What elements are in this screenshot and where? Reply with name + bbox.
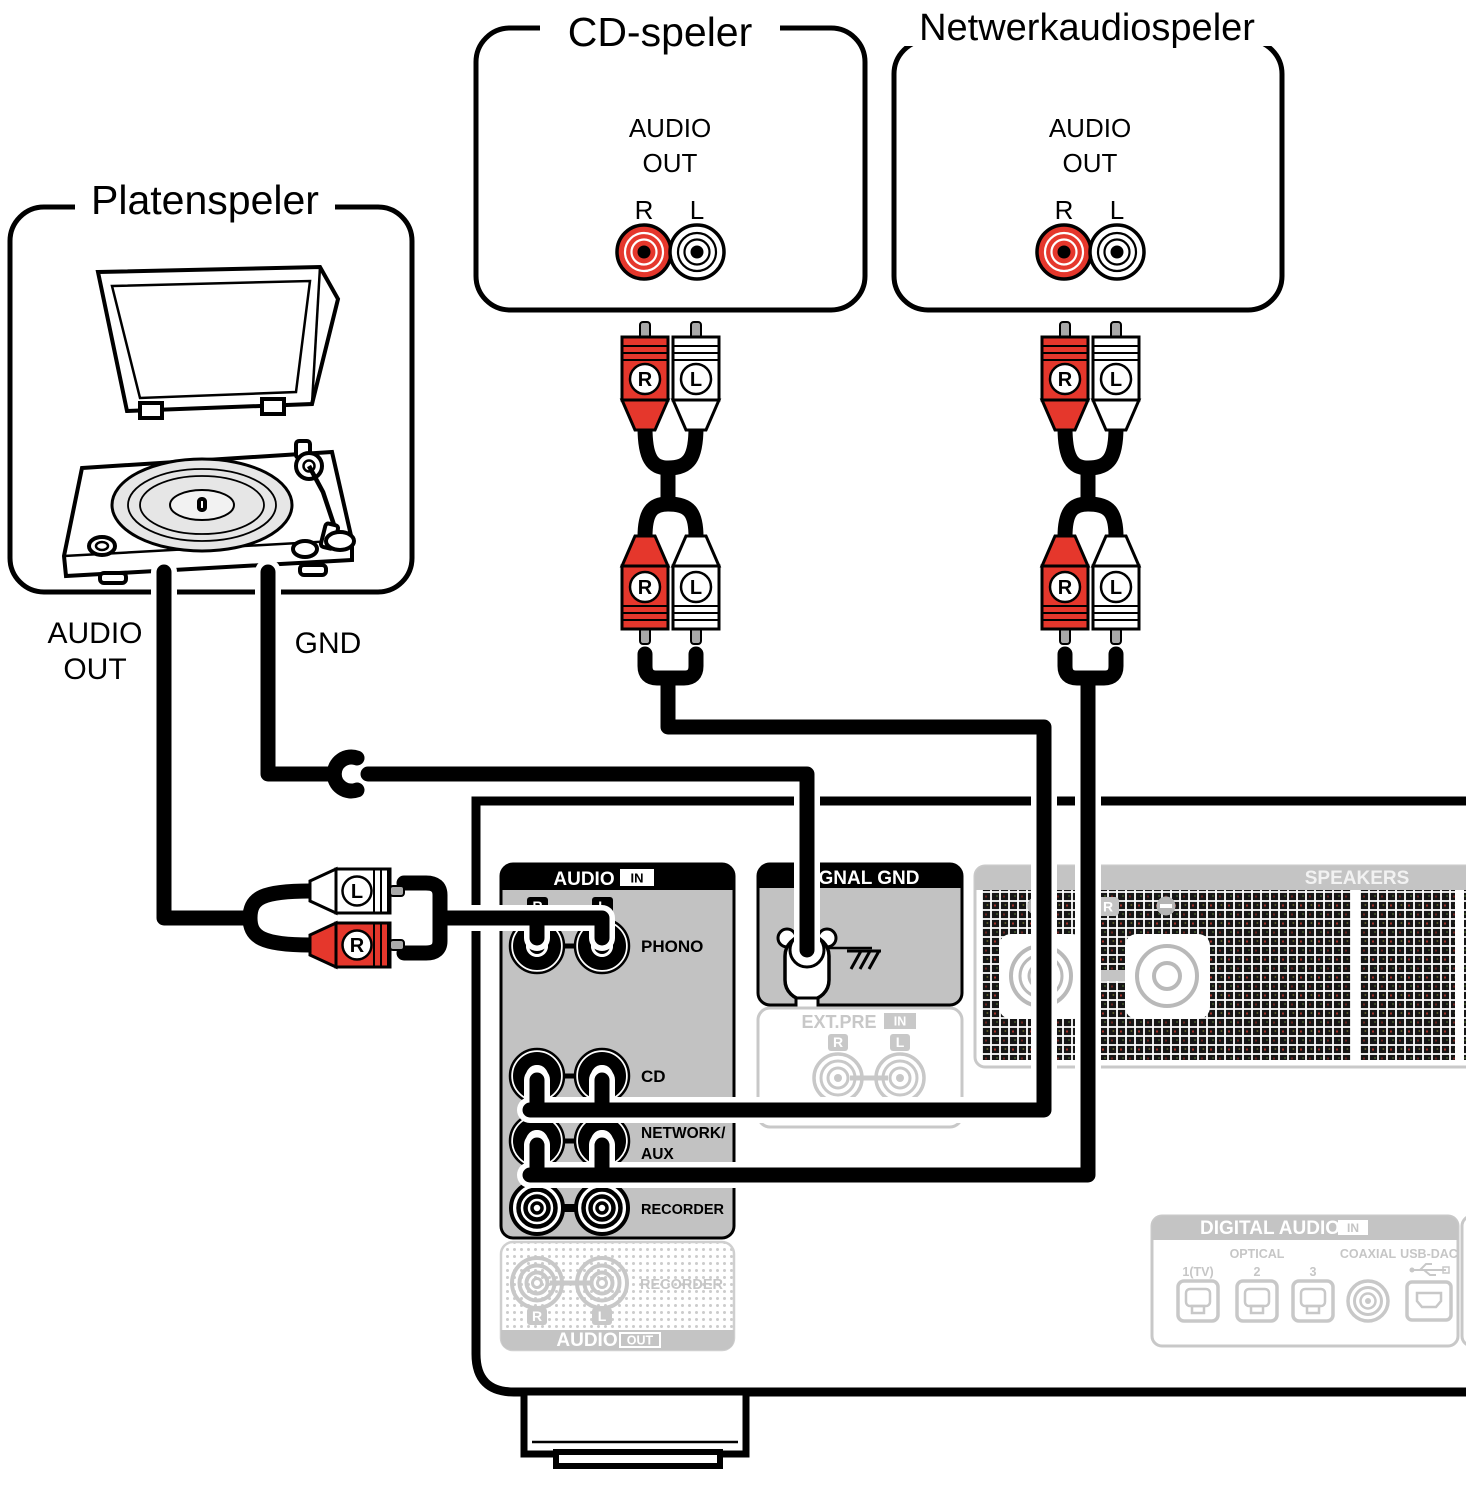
optical-3-label: 3	[1310, 1265, 1317, 1279]
signal-gnd-panel: SIGNAL GND	[758, 864, 962, 1011]
coaxial-label: COAXIAL	[1340, 1247, 1397, 1261]
digital-audio-panel: DIGITAL AUDIO IN OPTICAL COAXIAL USB-DAC…	[1152, 1216, 1458, 1346]
audio-out-l-chip: L	[598, 1308, 607, 1324]
recorder-in-label: RECORDER	[641, 1202, 725, 1218]
usb-dac-label: USB-DAC	[1400, 1247, 1458, 1261]
cd-l-label: L	[690, 195, 704, 225]
speakers-r-chip: R	[1103, 899, 1113, 915]
cd-player-box: CD-speler AUDIO OUT R L	[476, 4, 865, 310]
cd-in-label: CD	[641, 1067, 666, 1086]
network-lower-left-plug: L	[1093, 536, 1139, 644]
ext-pre-left-jack	[876, 1054, 924, 1102]
ext-pre-r-chip: R	[833, 1034, 843, 1050]
network-r-label: R	[1055, 195, 1074, 225]
turntable-box: Platenspeler	[10, 177, 412, 592]
svg-text:R: R	[350, 935, 365, 957]
recorder-in-right-jack	[511, 1182, 563, 1234]
svg-text:L: L	[690, 369, 702, 391]
connection-diagram-page: Platenspeler	[0, 0, 1466, 1487]
network-player-box: Netwerkaudiospeler AUDIO OUT R L	[894, 2, 1282, 310]
svg-text:L: L	[1110, 369, 1122, 391]
ext-pre-header: EXT.PRE	[801, 1012, 876, 1032]
audio-out-panel: RECORDER R L AUDIO OUT	[501, 1242, 734, 1351]
digital-audio-header: DIGITAL AUDIO	[1200, 1218, 1340, 1239]
network-upper-left-plug: L	[1093, 322, 1139, 430]
cd-upper-left-plug: L	[673, 322, 719, 430]
cd-audio-label: AUDIO	[629, 113, 711, 143]
audio-out-badge: OUT	[627, 1334, 654, 1348]
network-out-label: OUT	[1063, 148, 1118, 178]
network-audio-label: AUDIO	[1049, 113, 1131, 143]
cd-rca-out-right-jack	[617, 225, 671, 279]
ext-pre-right-jack	[814, 1054, 862, 1102]
svg-text:R: R	[638, 369, 653, 391]
audio-in-header: AUDIO	[553, 869, 614, 890]
cd-out-label: OUT	[643, 148, 698, 178]
network-rca-out-left-jack	[1090, 225, 1144, 279]
network-lower-right-plug: R	[1042, 536, 1088, 644]
network-upper-right-plug: R	[1042, 322, 1088, 430]
svg-text:L: L	[690, 577, 702, 599]
adjacent-panel-sliver	[1462, 1216, 1466, 1346]
recorder-in-left-jack	[576, 1182, 628, 1234]
svg-text:R: R	[1058, 577, 1073, 599]
network-aux-label-1: NETWORK/	[641, 1125, 726, 1142]
network-cable-upper	[1065, 427, 1116, 504]
svg-text:R: R	[638, 577, 653, 599]
network-aux-label-2: AUX	[641, 1146, 674, 1163]
optical-2-label: 2	[1254, 1265, 1261, 1279]
connection-diagram: Platenspeler	[0, 0, 1466, 1487]
minus-icon	[1157, 897, 1176, 916]
cd-rca-out-left-jack	[670, 225, 724, 279]
turntable-audio-out-label-2: OUT	[63, 653, 126, 686]
speakers-header: SPEAKERS	[1305, 868, 1410, 889]
phono-right-plug: R	[310, 923, 404, 967]
optical-label: OPTICAL	[1230, 1247, 1285, 1261]
cd-cable-upper	[645, 427, 696, 504]
ext-pre-badge: IN	[894, 1015, 907, 1029]
recorder-out-left-jack	[577, 1258, 627, 1308]
audio-out-footer: AUDIO	[556, 1330, 617, 1351]
phono-label: PHONO	[641, 937, 703, 956]
optical-1-label: 1(TV)	[1182, 1265, 1213, 1279]
network-l-label: L	[1110, 195, 1124, 225]
audio-out-r-chip: R	[532, 1308, 542, 1324]
speaker-terminal-right-minus	[1125, 934, 1210, 1019]
cd-lower-left-plug: L	[673, 536, 719, 644]
cd-player-title: CD-speler	[568, 9, 753, 55]
turntable-title: Platenspeler	[91, 177, 319, 223]
turntable-gnd-label: GND	[295, 627, 362, 660]
recorder-out-right-jack	[512, 1258, 562, 1308]
coaxial-jack	[1348, 1281, 1388, 1321]
network-player-title: Netwerkaudiospeler	[919, 7, 1255, 49]
network-rca-out-right-jack	[1037, 225, 1091, 279]
phono-left-plug: L	[310, 869, 404, 913]
turntable-audio-out-label-1: AUDIO	[47, 617, 142, 650]
svg-text:L: L	[1110, 577, 1122, 599]
amplifier-foot	[524, 1392, 746, 1466]
svg-text:L: L	[351, 881, 363, 903]
recorder-out-label: RECORDER	[640, 1277, 724, 1293]
ext-pre-l-chip: L	[896, 1034, 905, 1050]
cd-r-label: R	[635, 195, 654, 225]
audio-in-badge: IN	[631, 871, 644, 886]
digital-audio-badge: IN	[1347, 1221, 1359, 1235]
turntable-illustration	[64, 267, 354, 583]
amplifier-rear-panel: AUDIO IN R L PHONO	[476, 801, 1466, 1466]
svg-text:R: R	[1058, 369, 1073, 391]
cd-upper-right-plug: R	[622, 322, 668, 430]
cd-lower-right-plug: R	[622, 536, 668, 644]
